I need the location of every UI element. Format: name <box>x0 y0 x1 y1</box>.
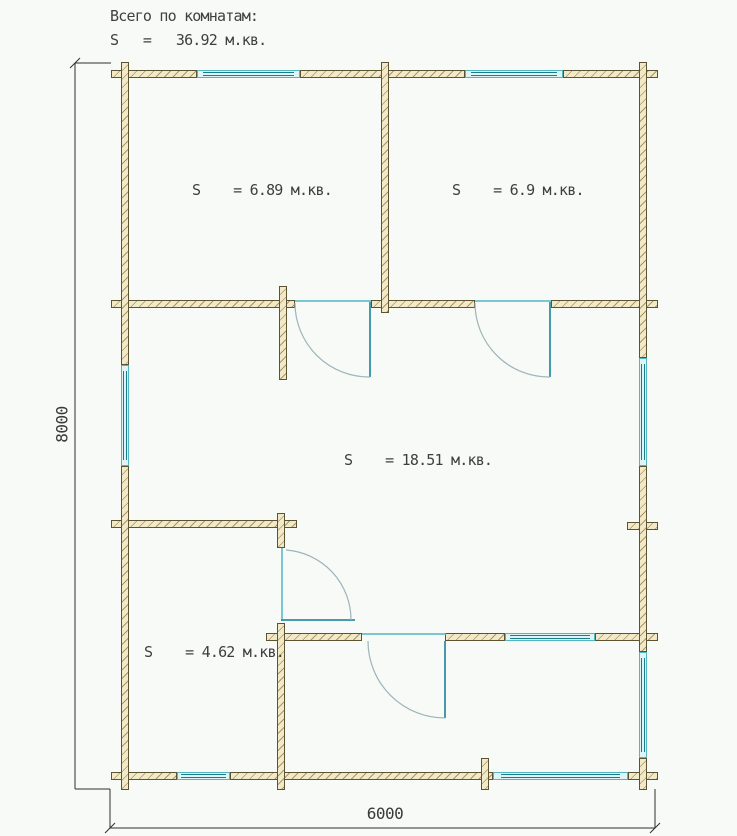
room-area-label: S = 6.89 м.кв. <box>192 180 332 200</box>
plan-title: Всего по комнатам: <box>110 6 258 26</box>
window <box>197 70 300 78</box>
floor-plan-canvas: Всего по комнатам: S = 36.92 м.кв. <box>0 0 737 836</box>
door <box>281 548 355 621</box>
door <box>362 634 446 718</box>
door-swing-arc <box>368 641 445 718</box>
window <box>177 772 230 780</box>
wall-segment <box>277 513 285 548</box>
wall-segment <box>111 300 295 308</box>
dimension-tick <box>105 823 115 833</box>
door <box>475 301 551 377</box>
room-area-label: S = 4.62 м.кв. <box>144 642 284 662</box>
room-area-label: S = 6.9 м.кв. <box>452 180 584 200</box>
dimension-tick <box>70 58 80 68</box>
wall-segment <box>121 62 129 365</box>
dimension-label-height: 8000 <box>53 393 72 457</box>
total-area-label: S = 36.92 м.кв. <box>110 30 266 50</box>
door-swing-arc <box>286 550 351 620</box>
room-area-label: S = 18.51 м.кв. <box>344 450 492 470</box>
wall-segment <box>445 633 505 641</box>
wall-segment <box>279 286 287 380</box>
door <box>295 301 371 377</box>
window <box>639 358 647 466</box>
wall-segment <box>230 772 493 780</box>
wall-segment <box>639 62 647 358</box>
window <box>121 365 129 466</box>
window <box>465 70 563 78</box>
wall-segment <box>639 758 647 790</box>
plan-linework <box>0 0 737 836</box>
wall-segment <box>121 466 129 790</box>
wall-segment <box>381 62 389 313</box>
wall-segment <box>111 520 297 528</box>
dimension-tick <box>650 823 660 833</box>
window <box>505 633 595 641</box>
wall-segment <box>481 758 489 790</box>
door-swing-arc <box>295 303 370 377</box>
dimension-label-width: 6000 <box>353 804 417 823</box>
dimension-lines <box>70 58 660 833</box>
wall-segment <box>595 633 658 641</box>
wall-segment <box>639 466 647 652</box>
window <box>493 772 628 780</box>
window <box>639 652 647 758</box>
door-swing-arc <box>475 303 550 377</box>
